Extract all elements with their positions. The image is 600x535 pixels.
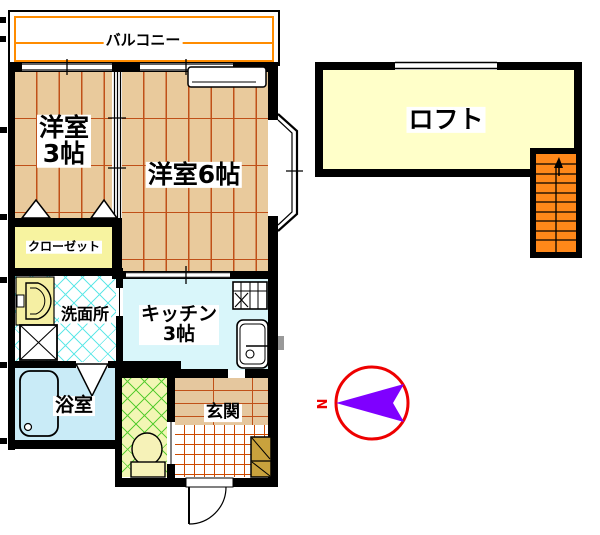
compass-needle-icon	[336, 384, 404, 422]
air-conditioner-icon	[188, 67, 266, 87]
room-western-3-name: 洋室	[39, 115, 89, 141]
balcony-label: バルコニー	[104, 33, 183, 49]
toilet-icon	[131, 433, 165, 477]
washroom-label: 洗面所	[59, 307, 111, 324]
compass	[336, 367, 408, 439]
washbasin-icon	[16, 277, 54, 325]
room-partition-sliding-door	[108, 72, 126, 218]
bathroom-folding-door-icon	[76, 364, 108, 396]
bay-window-area	[268, 114, 297, 231]
kitchen-size: 3帖	[141, 325, 217, 345]
bathroom-label: 浴室	[53, 396, 95, 416]
kitchen-label: キッチン 3帖	[139, 305, 219, 345]
closet-label: クローゼット	[26, 241, 102, 254]
loft-stairs	[530, 148, 582, 258]
kitchen-sink-icon	[237, 320, 268, 368]
loft-window	[395, 61, 497, 70]
meter-box	[278, 336, 284, 350]
washing-machine-icon	[20, 325, 57, 360]
gas-stove-icon	[233, 282, 267, 309]
closet-folding-doors-icon	[22, 200, 117, 218]
room-western-6-label: 洋室6帖	[146, 162, 242, 188]
kitchen-name: キッチン	[141, 305, 217, 325]
floor-plan: バルコニー 洋室 3帖 洋室6帖 クローゼット 洗面所 キッチン 3帖 浴室 玄…	[0, 0, 600, 535]
room-western-3-label: 洋室 3帖	[37, 115, 91, 168]
entrance-door-icon	[186, 478, 233, 524]
kitchen-sliding-door	[126, 266, 230, 284]
room-western-3-size: 3帖	[39, 141, 89, 167]
entrance-label: 玄関	[204, 404, 242, 422]
loft-label: ロフト	[406, 107, 485, 133]
compass-north-label: N	[313, 397, 327, 412]
shoe-cabinet-icon	[251, 437, 271, 477]
